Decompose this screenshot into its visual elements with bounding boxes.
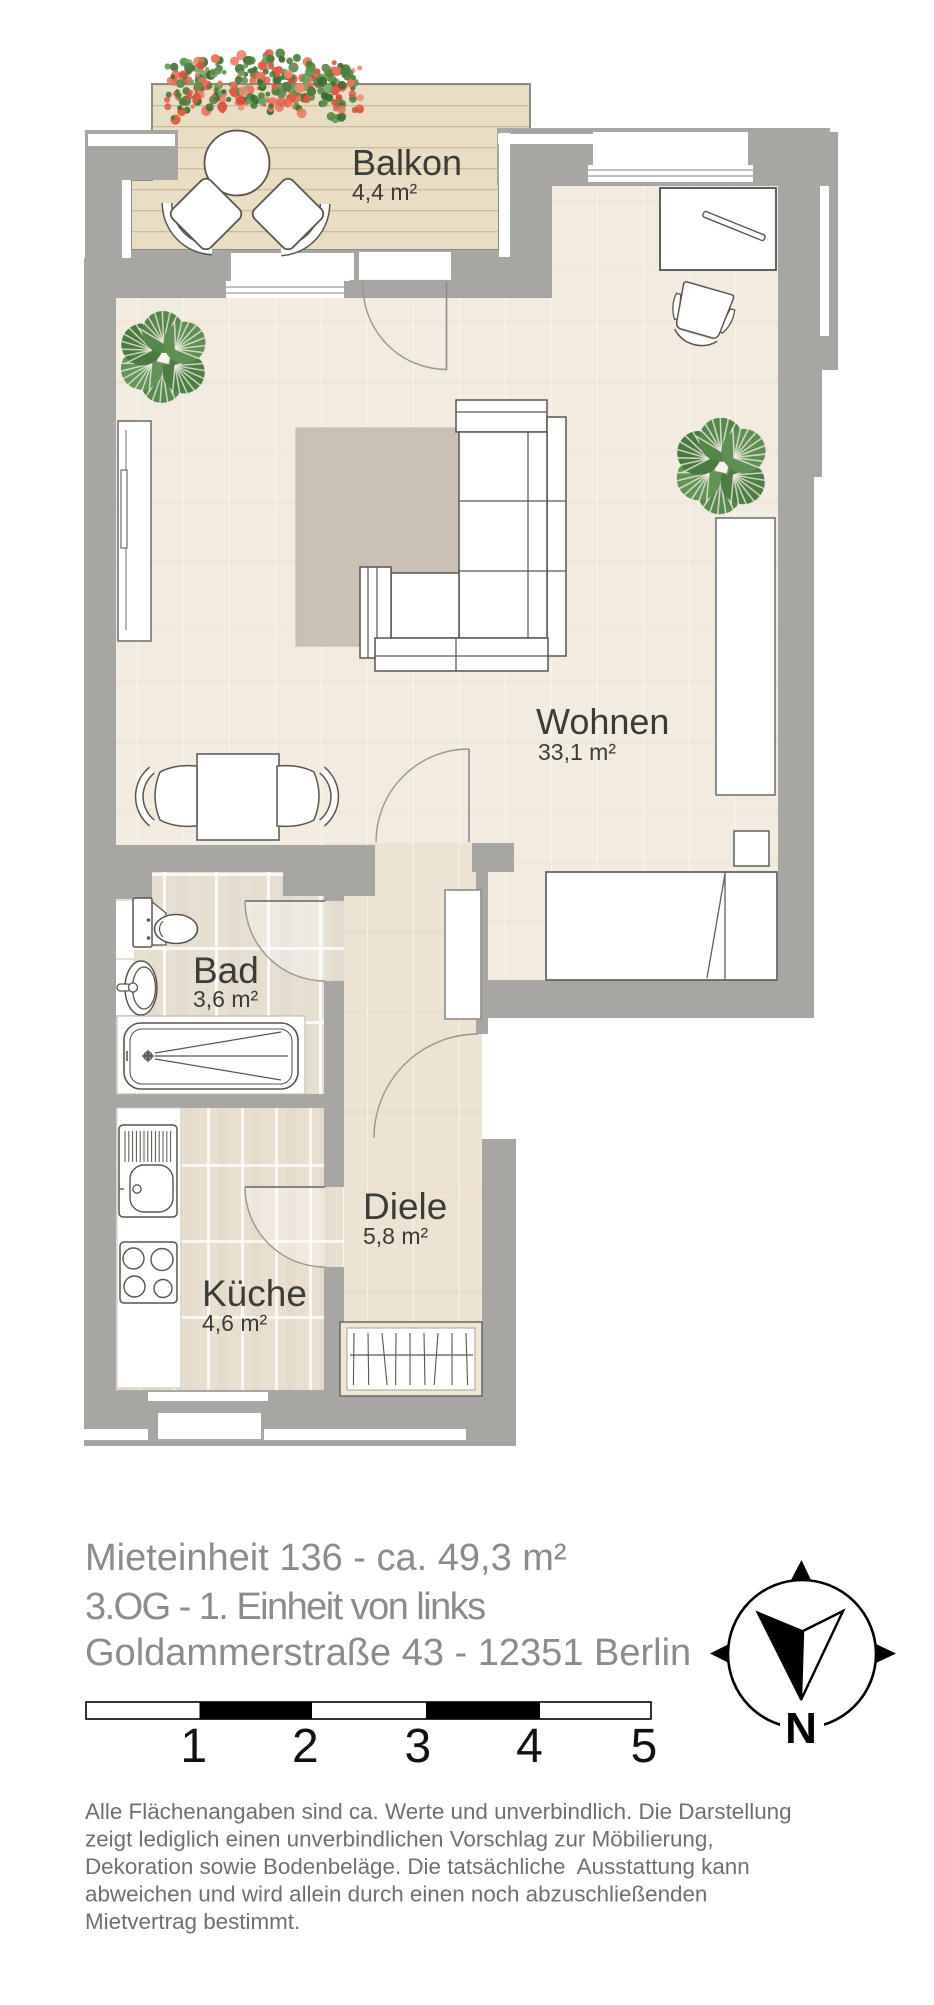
svg-text:Alle Flächenangaben sind ca. W: Alle Flächenangaben sind ca. Werte und u…: [85, 1799, 792, 1824]
svg-text:Diele: Diele: [363, 1186, 447, 1227]
svg-text:4,4 m²: 4,4 m²: [352, 179, 418, 205]
svg-text:Balkon: Balkon: [352, 142, 462, 183]
svg-text:3,6 m²: 3,6 m²: [193, 986, 259, 1012]
svg-text:4,6 m²: 4,6 m²: [202, 1310, 268, 1336]
svg-text:abweichen und wird allein durc: abweichen und wird allein durch einen no…: [85, 1882, 707, 1907]
svg-text:33,1 m²: 33,1 m²: [538, 739, 616, 765]
svg-text:4: 4: [516, 1720, 543, 1773]
svg-text:Bad: Bad: [193, 950, 259, 991]
svg-text:Goldammerstraße 43 - 12351 Ber: Goldammerstraße 43 - 12351 Berlin: [85, 1632, 691, 1674]
svg-text:1: 1: [180, 1720, 207, 1773]
svg-text:3: 3: [404, 1720, 431, 1773]
svg-text:2: 2: [292, 1720, 319, 1773]
svg-text:zeigt lediglich einen unverbin: zeigt lediglich einen unverbindlichen Vo…: [85, 1827, 714, 1852]
svg-text:Mietvertrag bestimmt.: Mietvertrag bestimmt.: [85, 1909, 300, 1934]
svg-text:Dekoration sowie Bodenbeläge.: Dekoration sowie Bodenbeläge. Die tatsäc…: [85, 1854, 750, 1879]
svg-text:Wohnen: Wohnen: [536, 701, 669, 742]
svg-text:Mieteinheit 136 - ca. 49,3 m²: Mieteinheit 136 - ca. 49,3 m²: [85, 1537, 567, 1579]
svg-text:5: 5: [631, 1720, 658, 1773]
svg-text:5,8 m²: 5,8 m²: [363, 1223, 429, 1249]
svg-text:N: N: [785, 1704, 817, 1753]
svg-text:3.OG - 1. Einheit von links: 3.OG - 1. Einheit von links: [85, 1586, 485, 1628]
svg-text:Küche: Küche: [202, 1273, 307, 1314]
